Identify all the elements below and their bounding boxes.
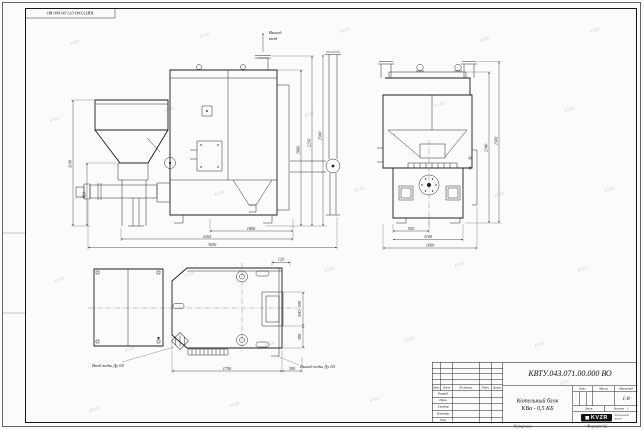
- tb-scale-value: 1:8: [615, 392, 638, 406]
- air-outlet-callout: Выход возд: [263, 30, 282, 52]
- watermark-text: KVZR: [478, 35, 490, 43]
- watermark-text: KVZR: [338, 26, 350, 34]
- tb-logo-cell: ▦ KVZR Котельный завод: [573, 412, 638, 424]
- tb-sheets-value: 1: [627, 407, 629, 411]
- side-view: [377, 62, 477, 226]
- plan-view: [88, 263, 299, 365]
- watermark-text: KVZR: [48, 115, 60, 123]
- tb-line: [492, 363, 493, 424]
- watermark-text: KVZR: [163, 105, 175, 113]
- footer-format-label: Формат А2: [587, 424, 607, 429]
- dim-plan-hatch-size: 500×500: [297, 300, 302, 317]
- watermark-text: KVZR: [533, 340, 545, 348]
- dim-plan-stub-offset: 300: [297, 333, 302, 340]
- tb-product-name-line1: Котельный блок: [517, 397, 559, 405]
- tb-sheets-label: Листов: [613, 407, 624, 411]
- air-outlet-label-line2: возд: [269, 36, 278, 41]
- margin-ticks: [2, 233, 25, 313]
- tb-line: [586, 392, 587, 406]
- tb-row-prov: Пров.: [433, 397, 453, 404]
- watermark-text: KVZR: [563, 105, 575, 113]
- dim-side-total-height: 2500: [493, 136, 498, 145]
- tb-product-name-line2: КВа - 0,5 КБ: [521, 405, 553, 413]
- tb-doc-number: КВТУ.043.071.00.000 ВО: [503, 363, 638, 386]
- dim-front-mid-width: 2165: [203, 234, 212, 239]
- tb-row-razrab: Разраб.: [433, 391, 453, 398]
- tb-line: [433, 379, 503, 380]
- watermark-text: KVZR: [368, 395, 380, 403]
- dim-plan-body-length: 1750: [223, 366, 232, 371]
- tb-row-tkontr: Т.контр.: [433, 404, 453, 411]
- tb-header-lit: Лит.: [573, 386, 593, 392]
- drawing-sheet: KVZR KVZR KVZR KVZR KVZR KVZR KVZR KVZR …: [0, 0, 644, 430]
- rotated-doc-number: КВТУ.043.071.00.000 ВО: [46, 11, 95, 16]
- side-view-dimensions: 2140 2500 550 1100 1600: [383, 62, 501, 251]
- tb-header-mass: Масса: [593, 386, 615, 392]
- dim-front-body-height: 2086: [295, 145, 300, 154]
- watermark-text: KVZR: [198, 31, 210, 39]
- dim-front-grate-width: 1800: [247, 226, 256, 231]
- dim-side-body-height: 2140: [483, 143, 488, 152]
- dim-front-auger-height: 821: [81, 192, 86, 198]
- dim-side-width-1: 550: [408, 226, 415, 231]
- watermark-text: KVZR: [213, 189, 225, 197]
- watermark-text: KVZR: [403, 335, 415, 343]
- dim-side-width-2: 1100: [424, 234, 433, 239]
- tb-line: [433, 374, 503, 375]
- tb-line: [433, 368, 503, 369]
- water-inlet-label: Вход воды Ду 65: [92, 363, 125, 368]
- logo-tagline: Котельный завод: [615, 414, 630, 421]
- front-view: [76, 52, 341, 226]
- tb-col-docnum: № докум.: [453, 385, 480, 391]
- rotated-designation-box: КВТУ.043.071.00.000 ВО: [25, 8, 115, 18]
- watermark-text: KVZR: [53, 275, 65, 283]
- watermark-text: KVZR: [323, 265, 335, 273]
- watermark-text: KVZR: [453, 260, 465, 268]
- title-block: Изм. Лист № докум. Подп. Дата Разраб. Пр…: [432, 362, 637, 423]
- tb-row-utv: Утв.: [433, 417, 453, 424]
- dim-front-vent-height: 2250: [306, 138, 311, 147]
- tb-row-nkontr: Н.контр.: [433, 410, 453, 417]
- watermark-text: KVZR: [303, 110, 315, 118]
- tb-product-name: Котельный блок КВа - 0,5 КБ: [503, 386, 573, 424]
- dim-front-total-width: 3050: [208, 242, 217, 247]
- dim-front-hopper-height: 1190: [67, 159, 72, 168]
- watermark-text: KVZR: [353, 185, 365, 193]
- front-view-dimensions: 1190 821 2086 2250 2500 1800 2165 3050: [67, 55, 337, 251]
- logo-text: KVZR: [591, 415, 608, 421]
- kvzr-logo: ▦ KVZR: [581, 414, 612, 422]
- footer-copied-label: Копировал: [513, 424, 532, 429]
- air-outlet-label-line1: Выход: [269, 30, 282, 35]
- watermark-text: KVZR: [433, 100, 445, 108]
- tb-line: [480, 363, 481, 424]
- water-outlet-label: Выход воды Ду 65: [300, 364, 336, 369]
- logo-grid-icon: ▦: [585, 415, 590, 420]
- watermark-text: KVZR: [88, 405, 100, 413]
- tb-col-data: Дата: [492, 385, 503, 391]
- dim-plan-stub-length: 395: [289, 366, 296, 371]
- tb-col-podp: Подп.: [480, 385, 492, 391]
- dim-front-total-height: 2500: [317, 131, 322, 140]
- logo-tagline-line2: завод: [615, 418, 630, 422]
- tb-line: [453, 363, 454, 424]
- watermark-text: KVZR: [603, 185, 615, 193]
- dim-plan-rear-offset: 120: [278, 256, 285, 261]
- watermark-text: KVZR: [576, 265, 588, 273]
- watermark-text: KVZR: [68, 38, 80, 46]
- watermark-text: KVZR: [588, 26, 600, 34]
- watermark-text: KVZR: [228, 400, 240, 408]
- dim-side-width-3: 1600: [426, 243, 435, 248]
- tb-line: [579, 392, 580, 406]
